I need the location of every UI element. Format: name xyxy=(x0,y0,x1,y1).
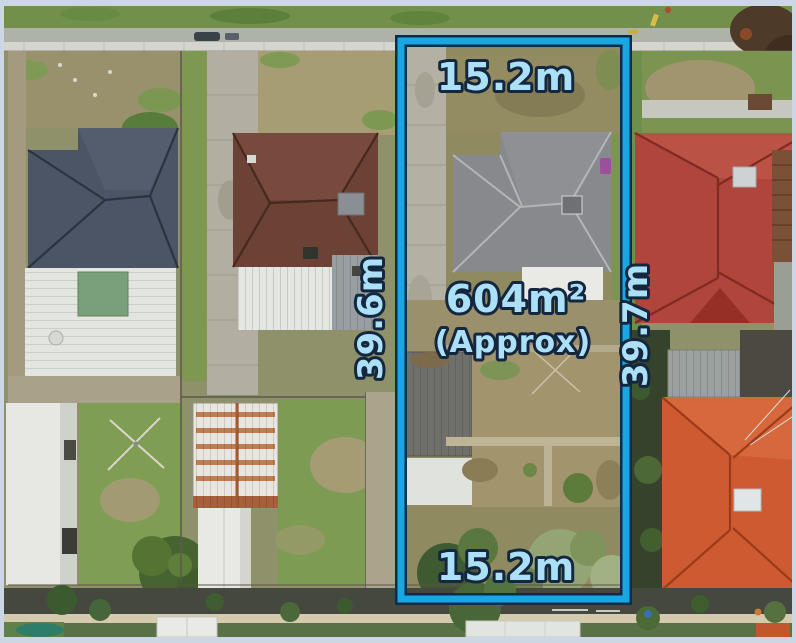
label-top-width: 15.2m xyxy=(437,55,575,99)
label-area-qualifier: (Approx) xyxy=(435,325,591,360)
chimney xyxy=(562,196,582,214)
wheelie-bin xyxy=(600,158,611,174)
aerial-photo: 15.2m 604m² (Approx) 15.2m 39.6m 39.7m xyxy=(0,0,796,643)
white-shed xyxy=(198,508,251,588)
green-panel xyxy=(78,272,128,316)
label-right-depth: 39.7m xyxy=(616,263,656,387)
label-area: 604m² xyxy=(446,277,587,321)
striped-shed xyxy=(193,403,278,508)
parked-car xyxy=(194,32,220,41)
satellite-dish xyxy=(49,331,63,345)
label-left-depth: 39.6m xyxy=(351,256,391,380)
ac-unit xyxy=(338,193,364,215)
label-bottom-width: 15.2m xyxy=(437,545,575,589)
